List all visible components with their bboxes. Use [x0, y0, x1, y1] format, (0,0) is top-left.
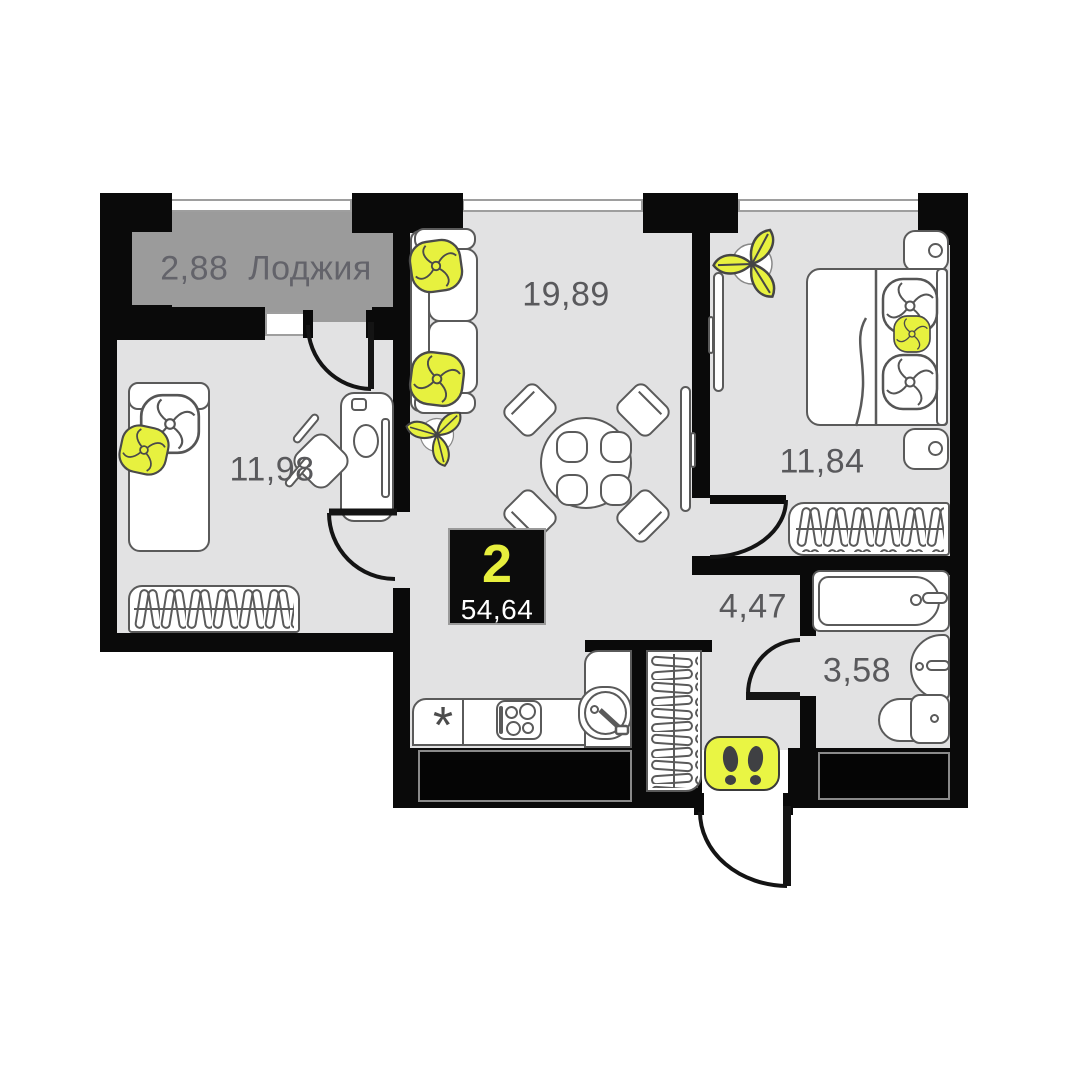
unit-info-badge: 2 54,64: [448, 528, 546, 625]
toilet-button: [930, 714, 939, 723]
footprint-icon: [722, 745, 740, 772]
sink-drain: [915, 662, 924, 671]
panel-notch: [690, 432, 696, 468]
window: [738, 199, 920, 212]
counter-divider: [462, 700, 464, 744]
wall: [100, 633, 410, 652]
monitor: [381, 418, 390, 498]
total-area: 54,64: [450, 594, 544, 626]
nightstand-knob: [928, 441, 943, 456]
pillow-icon: [892, 314, 932, 354]
footprint-icon: [725, 775, 736, 785]
hangers-icon: [134, 588, 294, 630]
outside-area: [90, 652, 393, 812]
door-leaf: [710, 495, 786, 504]
plate: [556, 431, 588, 463]
kitchen-sink-bowl: [584, 691, 627, 735]
door-jamb: [303, 310, 313, 338]
nightstand-knob: [928, 243, 943, 258]
pillow-icon: [880, 352, 940, 412]
desk-item: [351, 398, 367, 411]
wall: [100, 322, 117, 652]
drain: [590, 705, 599, 714]
burner: [505, 706, 518, 719]
shaft: [418, 750, 632, 802]
pillow-icon: [113, 419, 175, 481]
sink-faucet: [926, 660, 950, 671]
wall: [950, 193, 968, 808]
door-jamb: [783, 793, 793, 815]
hangers-icon: [650, 654, 698, 788]
shaft: [818, 752, 950, 800]
loggia-name: Лоджия: [248, 250, 371, 288]
bath-faucet: [922, 592, 948, 604]
fridge-symbol: *: [424, 700, 462, 752]
bedroom-left-area-label: 11,98: [229, 451, 314, 490]
rooms-count: 2: [450, 537, 544, 591]
mouse: [353, 424, 379, 458]
window: [462, 199, 643, 212]
bedroom-right-area-label: 11,84: [779, 443, 864, 482]
door-jamb: [694, 793, 704, 815]
door-jamb: [366, 310, 376, 338]
footprints-badge: [704, 736, 780, 791]
burner: [506, 721, 521, 736]
bath-drain: [910, 594, 922, 606]
bathroom-area-label: 3,58: [823, 652, 891, 691]
wall: [100, 307, 265, 340]
loggia-label: 2,88 Лоджия: [160, 250, 372, 289]
footprint-icon: [750, 775, 761, 785]
loggia-area: 2,88: [160, 250, 228, 288]
hallway-area-label: 4,47: [719, 588, 787, 627]
floor-plan: *: [0, 0, 1080, 1080]
burner: [519, 703, 536, 720]
plate: [600, 431, 632, 463]
plant-icon: [712, 224, 792, 304]
stove-handle: [499, 706, 503, 734]
burner: [522, 722, 534, 734]
plate: [556, 474, 588, 506]
door-arc: [700, 812, 787, 886]
living-area-label: 19,89: [522, 276, 610, 315]
panel-notch: [708, 316, 714, 354]
plate: [600, 474, 632, 506]
pillow-icon: [404, 234, 467, 297]
footprint-icon: [747, 745, 765, 772]
hangers-icon: [796, 506, 944, 552]
